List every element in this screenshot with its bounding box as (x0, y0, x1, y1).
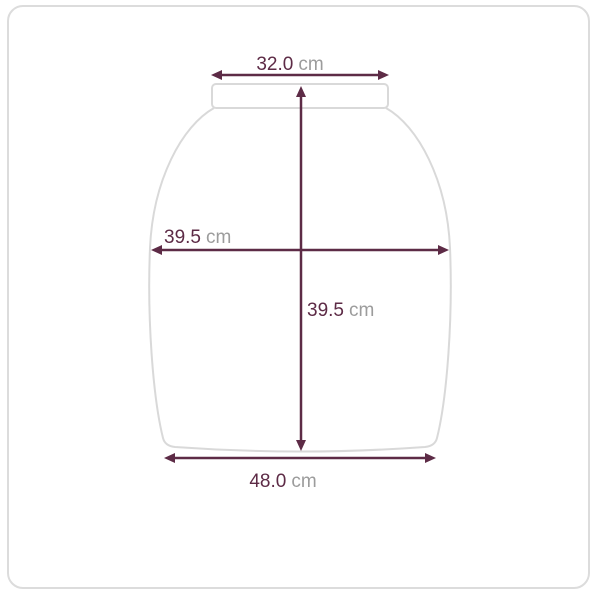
mid-width-label: 39.5cm (164, 227, 231, 248)
length-value: 39.5 (307, 300, 344, 321)
top-width-arrowhead-left (211, 70, 222, 80)
bottom-width-arrowhead-left (164, 453, 175, 463)
top-width-label: 32.0cm (256, 54, 323, 75)
top-width-value: 32.0 (256, 54, 293, 75)
bottom-width-arrowhead-right (425, 453, 436, 463)
length-arrowhead-top (296, 86, 306, 97)
length-measure: 39.5cm (296, 86, 374, 451)
top-width-arrowhead-right (378, 70, 389, 80)
bottom-width-label: 48.0cm (249, 471, 316, 492)
bottom-width-unit: cm (291, 471, 316, 492)
top-width-measure: 32.0cm (211, 54, 389, 80)
mid-width-unit: cm (206, 227, 231, 248)
length-unit: cm (349, 300, 374, 321)
mid-width-arrowhead-right (438, 245, 449, 255)
mid-width-arrowhead-left (151, 245, 162, 255)
bottom-width-value: 48.0 (249, 471, 286, 492)
bottom-width-measure: 48.0cm (164, 453, 436, 492)
top-width-unit: cm (298, 54, 323, 75)
mid-width-value: 39.5 (164, 227, 201, 248)
size-diagram-canvas: 32.0cm 39.5cm 39.5cm 48.0cm (0, 0, 600, 600)
length-arrowhead-bottom (296, 440, 306, 451)
length-label: 39.5cm (307, 300, 374, 321)
garment-measurement-diagram: 32.0cm 39.5cm 39.5cm 48.0cm (0, 0, 600, 600)
